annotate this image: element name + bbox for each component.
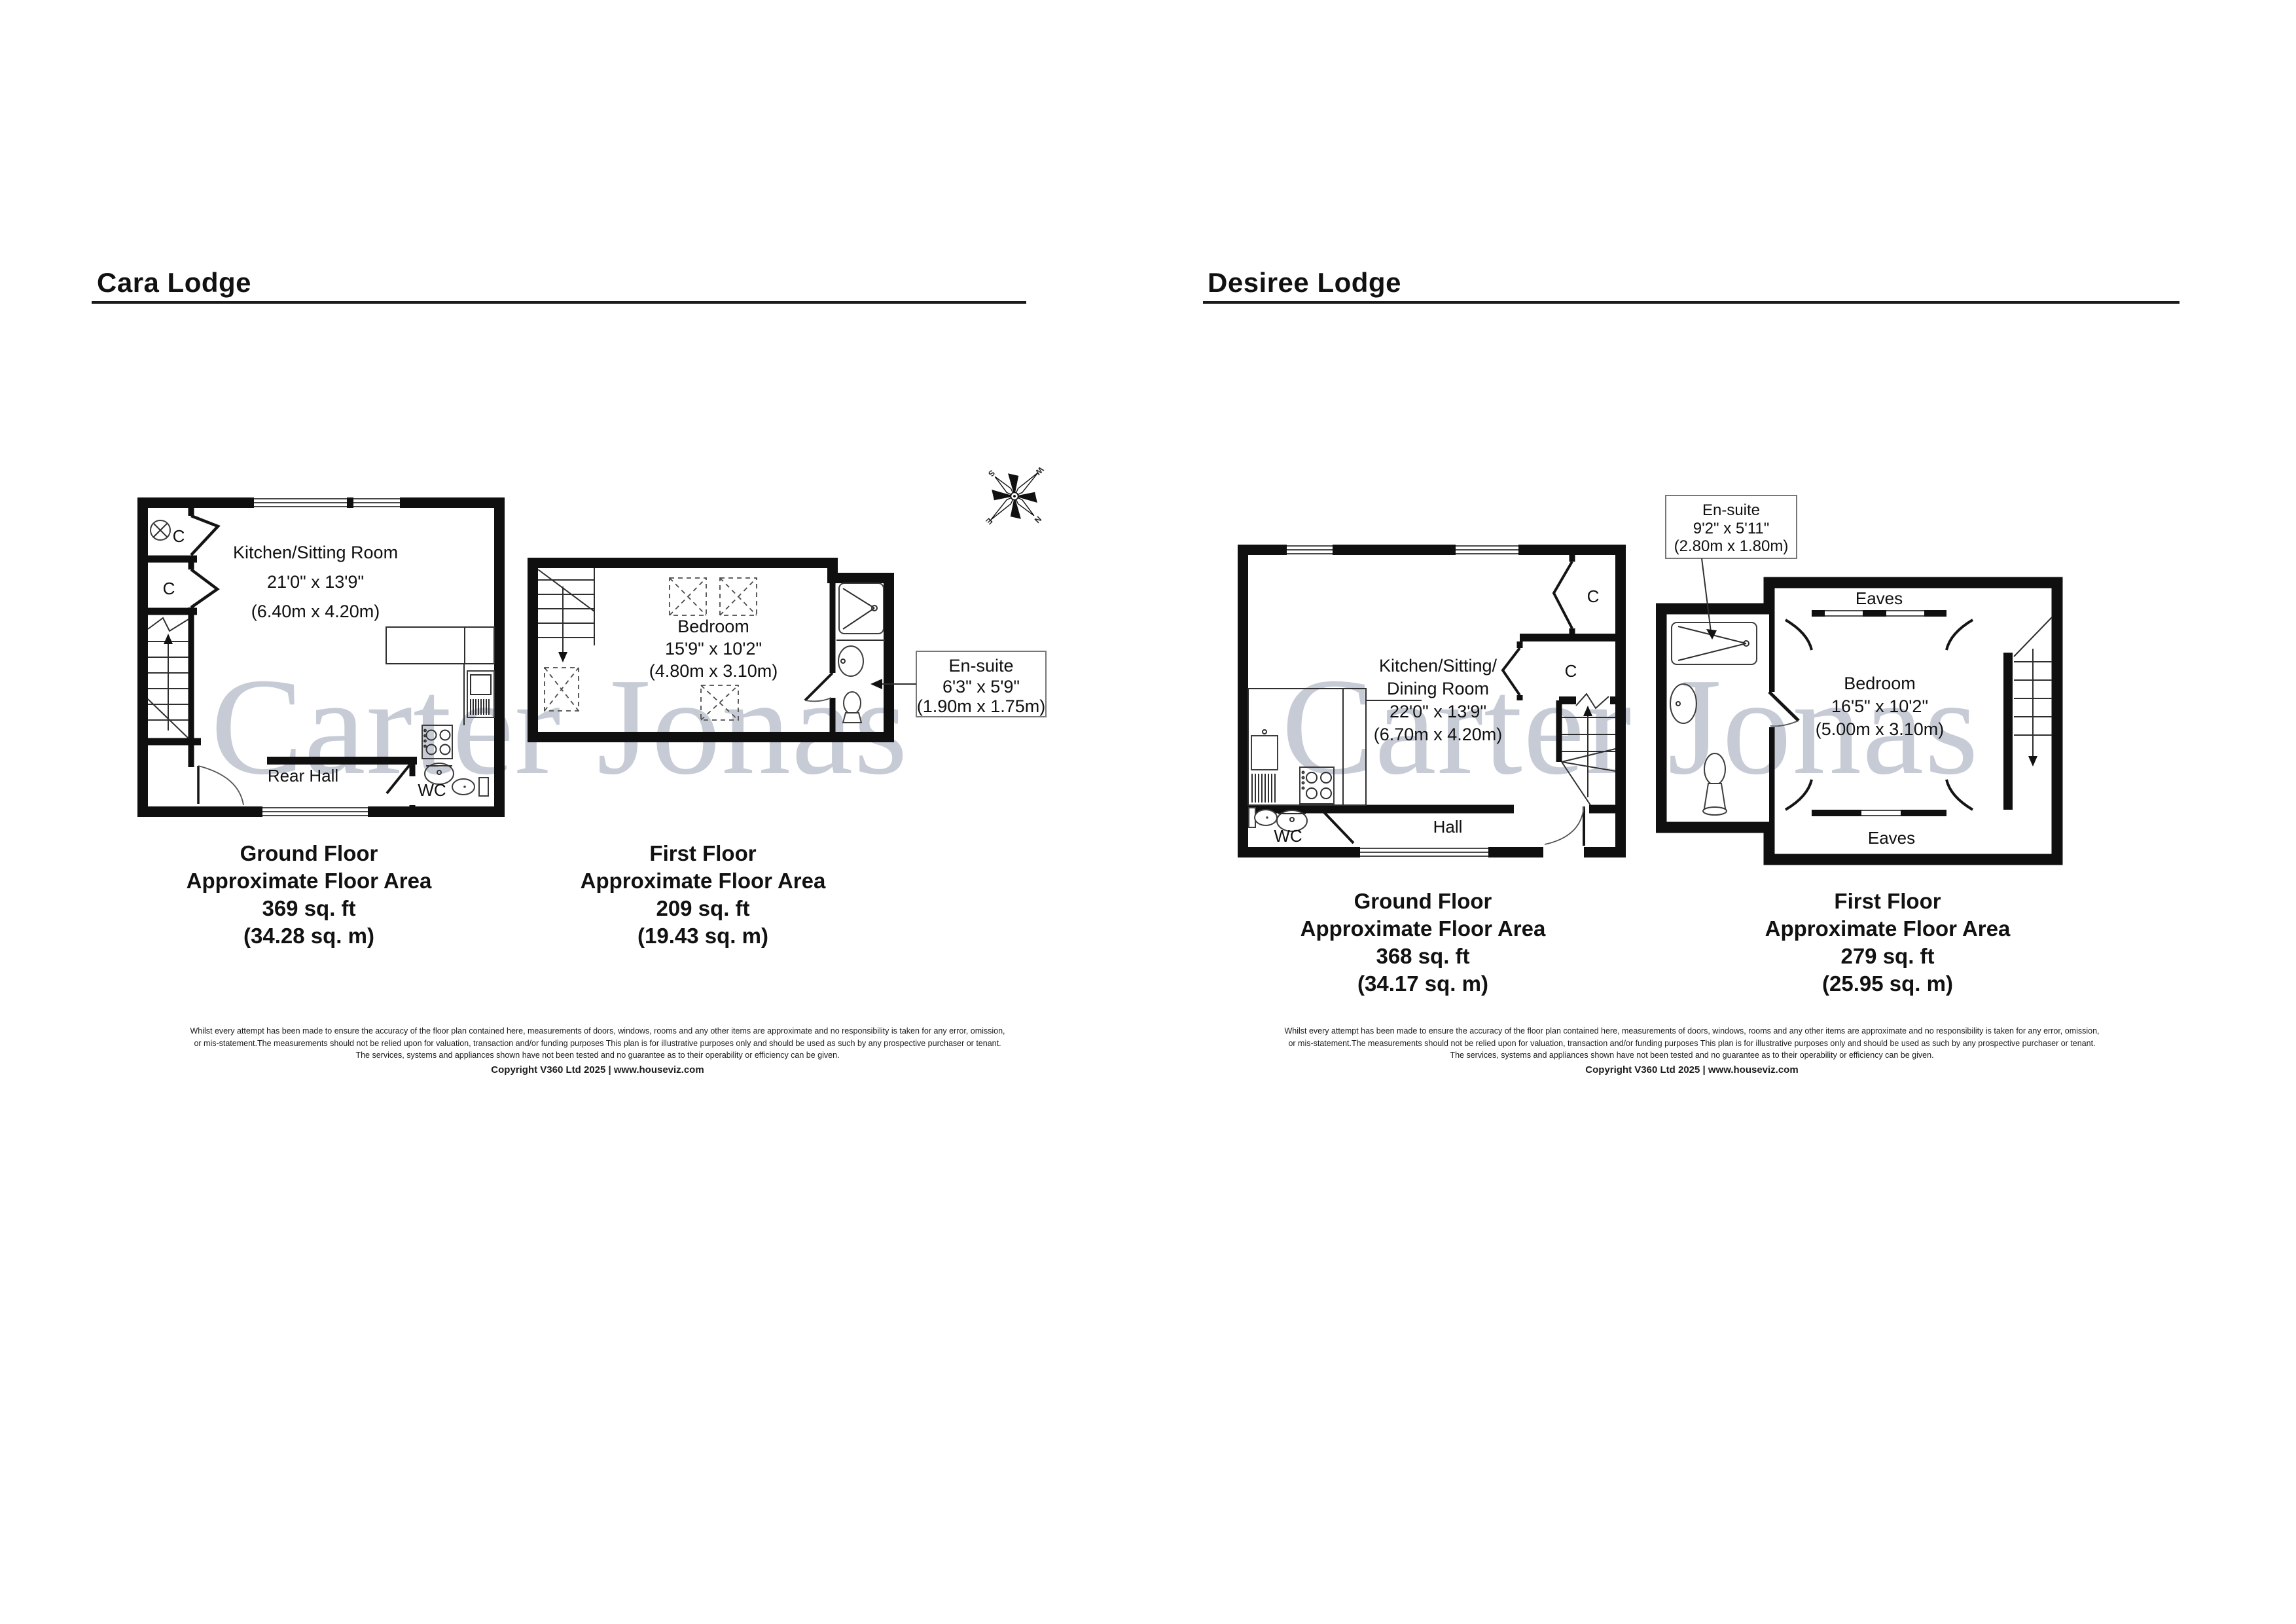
cara-ground-room-name: Kitchen/Sitting Room [233, 543, 398, 562]
cara-ground-area-ft: 369 sq. ft [139, 895, 479, 922]
desiree-ground-toilet-icon [1249, 808, 1277, 827]
desiree-title: Desiree Lodge [1208, 267, 1401, 298]
cara-first-area-m: (19.43 sq. m) [533, 922, 873, 950]
cara-ground-area: Ground Floor Approximate Floor Area 369 … [139, 840, 479, 950]
cara-first-shower-icon [839, 583, 884, 634]
cara-title-rule [92, 301, 1026, 304]
cara-first-area-ft: 209 sq. ft [533, 895, 873, 922]
cara-first-ensuite-dim-m: (1.90m x 1.75m) [917, 696, 1046, 716]
desiree-ground-floor-name: Ground Floor [1253, 888, 1593, 915]
floorplan-page: Cara Lodge Desiree Lodge N S W E [0, 0, 2296, 1624]
desiree-ground-area: Ground Floor Approximate Floor Area 368 … [1253, 888, 1593, 998]
desiree-first-eaves-bottom-label: Eaves [1868, 828, 1915, 848]
disclaimer-copyright: Copyright V360 Ltd 2025 | www.houseviz.c… [1257, 1064, 2127, 1077]
disclaimer-line1: Whilst every attempt has been made to en… [162, 1025, 1033, 1038]
disclaimer-line3: The services, systems and appliances sho… [1257, 1049, 2127, 1062]
cara-disclaimer: Whilst every attempt has been made to en… [162, 1025, 1033, 1076]
desiree-ground-area-label: Approximate Floor Area [1253, 915, 1593, 943]
cara-first-ensuite-name: En-suite [948, 656, 1013, 676]
desiree-ground-area-ft: 368 sq. ft [1253, 943, 1593, 970]
cara-ground-closet-top-label: C [173, 526, 185, 546]
cara-first-area: First Floor Approximate Floor Area 209 s… [533, 840, 873, 950]
desiree-first-ensuite-dim-ft: 9'2" x 5'11" [1693, 520, 1770, 537]
disclaimer-line2: or mis-statement.The measurements should… [162, 1038, 1033, 1050]
disclaimer-line2: or mis-statement.The measurements should… [1257, 1038, 2127, 1050]
desiree-first-area: First Floor Approximate Floor Area 279 s… [1717, 888, 2058, 998]
cara-ground-light-icon [151, 520, 170, 540]
cara-watermark: Carter Jonas [211, 647, 908, 806]
desiree-disclaimer: Whilst every attempt has been made to en… [1257, 1025, 2127, 1076]
cara-first-floor-name: First Floor [533, 840, 873, 867]
desiree-ground-closet-top-label: C [1587, 586, 1600, 606]
disclaimer-line1: Whilst every attempt has been made to en… [1257, 1025, 2127, 1038]
cara-ground-area-label: Approximate Floor Area [139, 867, 479, 895]
cara-ground-room-dim-ft: 21'0" x 13'9" [267, 572, 364, 592]
desiree-ground-wc-label: WC [1274, 826, 1302, 846]
desiree-first-area-ft: 279 sq. ft [1717, 943, 2058, 970]
cara-ground-floor-name: Ground Floor [139, 840, 479, 867]
desiree-first-eaves-top-label: Eaves [1856, 588, 1903, 608]
compass-group: N S W E [977, 458, 1052, 534]
desiree-first-ensuite-dim-m: (2.80m x 1.80m) [1674, 537, 1789, 555]
compass-rose-icon: N S W E [977, 458, 1052, 534]
cara-first-room-name: Bedroom [677, 617, 749, 636]
compass-n-label: N [1033, 514, 1043, 525]
compass-s-label: S [986, 468, 997, 478]
desiree-title-rule [1203, 301, 2179, 304]
cara-ground-area-m: (34.28 sq. m) [139, 922, 479, 950]
desiree-first-ensuite-name: En-suite [1702, 501, 1760, 519]
disclaimer-line3: The services, systems and appliances sho… [162, 1049, 1033, 1062]
desiree-first-area-m: (25.95 sq. m) [1717, 970, 2058, 998]
cara-first-area-label: Approximate Floor Area [533, 867, 873, 895]
desiree-first-floor-name: First Floor [1717, 888, 2058, 915]
cara-ground-bottom-window [262, 806, 368, 817]
desiree-first-area-label: Approximate Floor Area [1717, 915, 2058, 943]
desiree-ground-area-m: (34.17 sq. m) [1253, 970, 1593, 998]
cara-first-ensuite-dim-ft: 6'3" x 5'9" [942, 677, 1020, 696]
cara-ground-room-dim-m: (6.40m x 4.20m) [251, 602, 380, 621]
cara-title: Cara Lodge [97, 267, 251, 298]
desiree-ground-hall-label: Hall [1433, 817, 1463, 837]
desiree-ground-bottom-window [1360, 847, 1584, 857]
cara-ground-closet-mid-label: C [163, 579, 175, 598]
desiree-watermark: Carter Jonas [1282, 647, 1979, 806]
disclaimer-copyright: Copyright V360 Ltd 2025 | www.houseviz.c… [162, 1064, 1033, 1077]
cara-ground-top-windows [254, 497, 400, 508]
